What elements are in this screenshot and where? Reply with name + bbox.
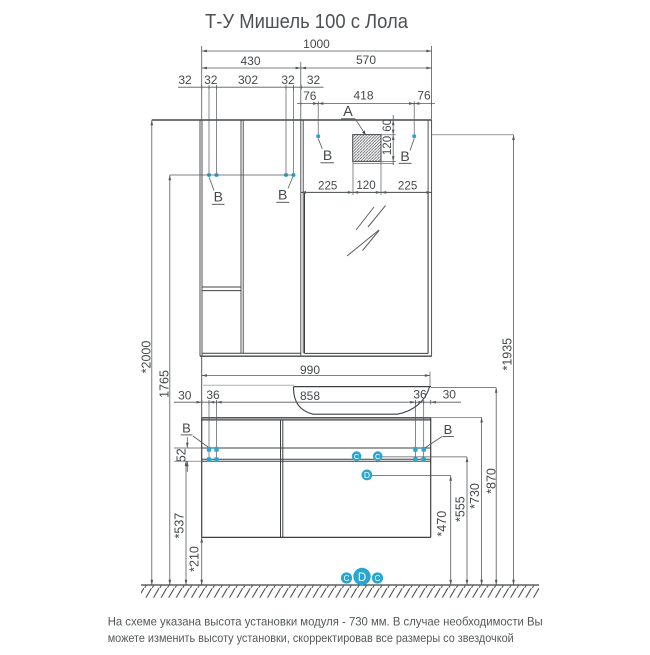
- svg-text:*470: *470: [435, 511, 449, 537]
- svg-text:76: 76: [417, 88, 431, 102]
- svg-text:C: C: [354, 452, 360, 461]
- svg-text:*537: *537: [172, 513, 186, 539]
- svg-text:990: 990: [300, 363, 320, 377]
- svg-text:Т-У Мишель 100 с Лола: Т-У Мишель 100 с Лола: [205, 10, 409, 33]
- svg-text:можете изменить высоту установ: можете изменить высоту установки, скорре…: [108, 631, 514, 645]
- svg-text:1765: 1765: [157, 370, 171, 398]
- svg-text:На схеме указана высота устано: На схеме указана высота установки модуля…: [108, 615, 543, 629]
- svg-text:225: 225: [398, 179, 417, 192]
- svg-text:60: 60: [382, 119, 394, 132]
- svg-text:1000: 1000: [303, 37, 330, 51]
- svg-text:C: C: [375, 574, 381, 583]
- svg-text:32: 32: [307, 73, 321, 87]
- svg-text:120: 120: [382, 136, 394, 155]
- svg-text:В: В: [182, 420, 191, 435]
- svg-text:*555: *555: [453, 496, 467, 522]
- svg-text:36: 36: [413, 388, 427, 402]
- svg-text:430: 430: [240, 54, 260, 68]
- svg-text:C: C: [375, 452, 381, 461]
- svg-text:В: В: [323, 147, 332, 163]
- svg-text:*2000: *2000: [139, 341, 153, 374]
- svg-text:А: А: [343, 104, 353, 120]
- svg-text:*870: *870: [484, 468, 498, 494]
- svg-text:D: D: [358, 572, 366, 584]
- svg-text:32: 32: [204, 73, 218, 87]
- svg-text:858: 858: [300, 389, 320, 403]
- svg-text:В: В: [278, 187, 287, 203]
- svg-text:*730: *730: [468, 483, 482, 509]
- svg-text:В: В: [444, 422, 453, 437]
- svg-text:120: 120: [356, 179, 375, 192]
- svg-text:32: 32: [281, 73, 295, 87]
- svg-text:302: 302: [238, 73, 258, 87]
- svg-text:C: C: [344, 574, 350, 583]
- svg-text:418: 418: [353, 88, 373, 102]
- svg-text:570: 570: [356, 53, 376, 67]
- svg-text:*1935: *1935: [500, 338, 514, 371]
- svg-text:В: В: [214, 189, 223, 205]
- svg-text:36: 36: [206, 388, 220, 402]
- svg-text:*210: *210: [187, 546, 201, 572]
- svg-text:30: 30: [178, 389, 192, 403]
- svg-text:30: 30: [443, 388, 457, 402]
- svg-text:52: 52: [174, 448, 188, 462]
- svg-text:76: 76: [303, 89, 317, 103]
- svg-text:225: 225: [318, 179, 337, 192]
- svg-text:32: 32: [178, 73, 192, 87]
- svg-text:D: D: [364, 470, 370, 480]
- svg-text:В: В: [400, 148, 409, 164]
